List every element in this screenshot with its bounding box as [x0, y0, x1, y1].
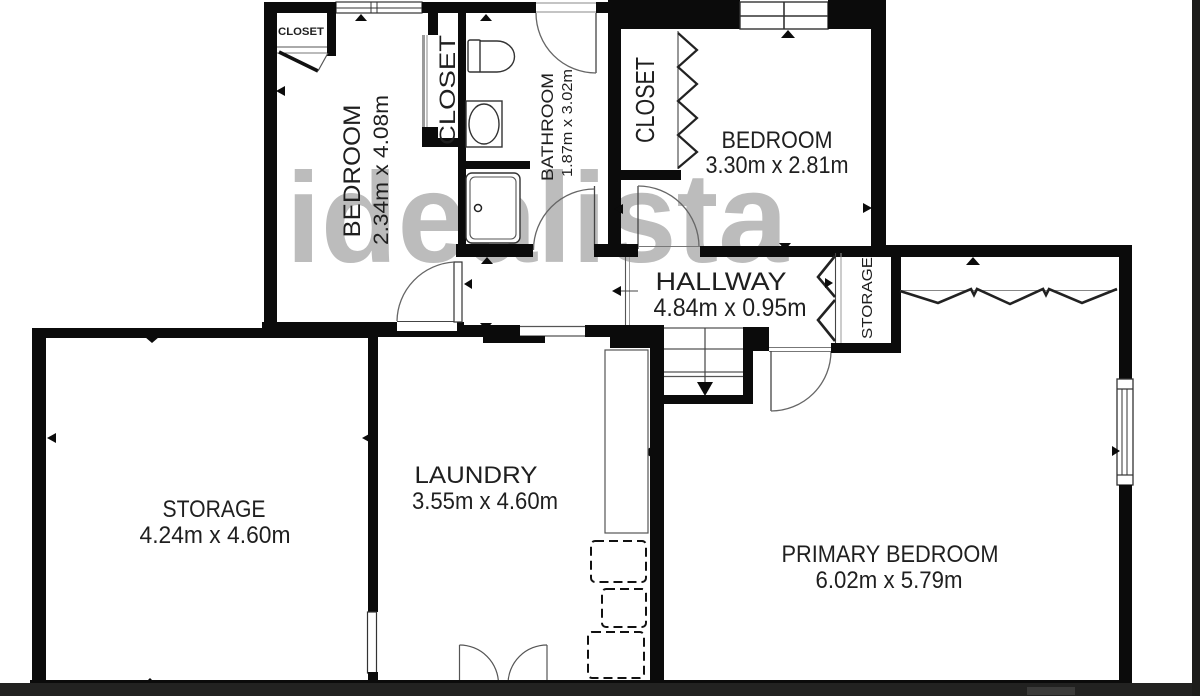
svg-text:CLOSET: CLOSET [435, 35, 460, 145]
svg-text:6.02m x 5.79m: 6.02m x 5.79m [816, 567, 963, 594]
svg-text:PRIMARY BEDROOM: PRIMARY BEDROOM [782, 541, 999, 568]
svg-text:BEDROOM: BEDROOM [339, 105, 366, 238]
svg-text:STORAGE: STORAGE [163, 496, 266, 523]
svg-text:LAUNDRY: LAUNDRY [415, 462, 538, 489]
svg-text:4.84m x 0.95m: 4.84m x 0.95m [654, 294, 807, 322]
svg-text:STORAGE: STORAGE [859, 257, 876, 339]
svg-text:3.30m x 2.81m: 3.30m x 2.81m [706, 152, 849, 179]
svg-text:1.87m x 3.02m: 1.87m x 3.02m [559, 69, 576, 177]
svg-text:4.24m x 4.60m: 4.24m x 4.60m [140, 522, 291, 549]
svg-text:2.34m x 4.08m: 2.34m x 4.08m [370, 95, 393, 245]
svg-text:CLOSET: CLOSET [278, 26, 324, 38]
svg-text:BEDROOM: BEDROOM [722, 127, 833, 154]
svg-text:3.55m x 4.60m: 3.55m x 4.60m [412, 488, 558, 515]
svg-text:BATHROOM: BATHROOM [538, 73, 557, 181]
svg-text:CLOSET: CLOSET [630, 57, 660, 143]
svg-text:HALLWAY: HALLWAY [656, 268, 787, 296]
